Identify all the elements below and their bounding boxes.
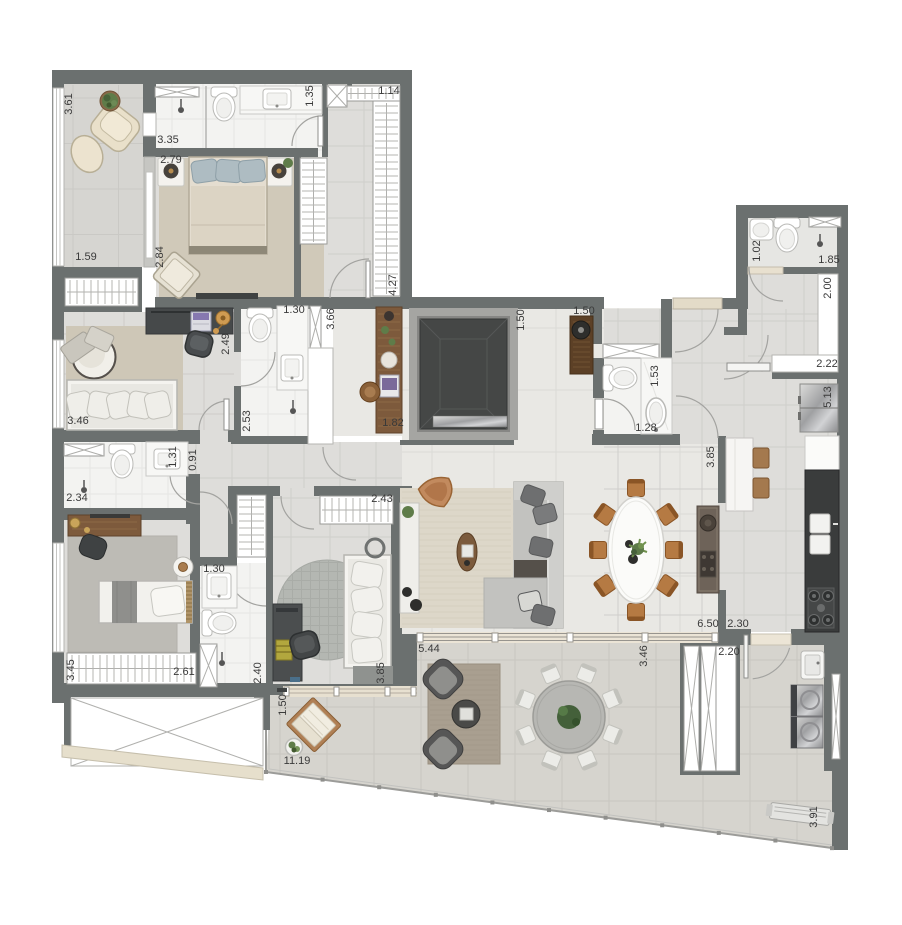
svg-text:1.53: 1.53 [649,365,661,386]
svg-text:2.34: 2.34 [66,492,87,504]
svg-text:3.61: 3.61 [63,93,75,114]
svg-text:3.35: 3.35 [157,134,178,146]
svg-text:3.85: 3.85 [375,662,387,683]
svg-text:4.27: 4.27 [387,274,399,295]
svg-text:1.30: 1.30 [203,563,224,575]
svg-text:2.00: 2.00 [822,277,834,298]
svg-text:2.43: 2.43 [371,493,392,505]
svg-text:1.59: 1.59 [75,251,96,263]
svg-text:2.22: 2.22 [816,358,837,370]
svg-text:1.50: 1.50 [277,694,289,715]
svg-text:1.02: 1.02 [751,240,763,261]
svg-text:2.20: 2.20 [718,646,739,658]
svg-text:3.46: 3.46 [67,415,88,427]
svg-text:3.91: 3.91 [808,806,820,827]
svg-text:2.61: 2.61 [173,666,194,678]
svg-text:1.31: 1.31 [167,446,179,467]
svg-text:2.79: 2.79 [160,154,181,166]
svg-text:3.45: 3.45 [65,659,77,680]
svg-text:1.82: 1.82 [382,417,403,429]
svg-text:1.85: 1.85 [818,254,839,266]
svg-text:5.13: 5.13 [822,386,834,407]
svg-text:3.46: 3.46 [638,645,650,666]
svg-text:3.85: 3.85 [705,446,717,467]
svg-text:2.40: 2.40 [252,662,264,683]
svg-text:3.66: 3.66 [325,308,337,329]
svg-text:1.28: 1.28 [635,422,656,434]
svg-text:11.19: 11.19 [284,755,311,767]
svg-text:1.35: 1.35 [304,85,316,106]
svg-text:2.53: 2.53 [241,410,253,431]
svg-text:6.50: 6.50 [697,618,718,630]
svg-text:1.30: 1.30 [283,304,304,316]
svg-text:2.84: 2.84 [154,246,166,267]
svg-text:2.30: 2.30 [727,618,748,630]
svg-text:5.44: 5.44 [418,643,439,655]
svg-text:1.50: 1.50 [515,309,527,330]
svg-text:2.49: 2.49 [220,333,232,354]
svg-text:0.91: 0.91 [187,449,199,470]
svg-text:1.50: 1.50 [573,305,594,317]
svg-text:1.14: 1.14 [378,85,399,97]
